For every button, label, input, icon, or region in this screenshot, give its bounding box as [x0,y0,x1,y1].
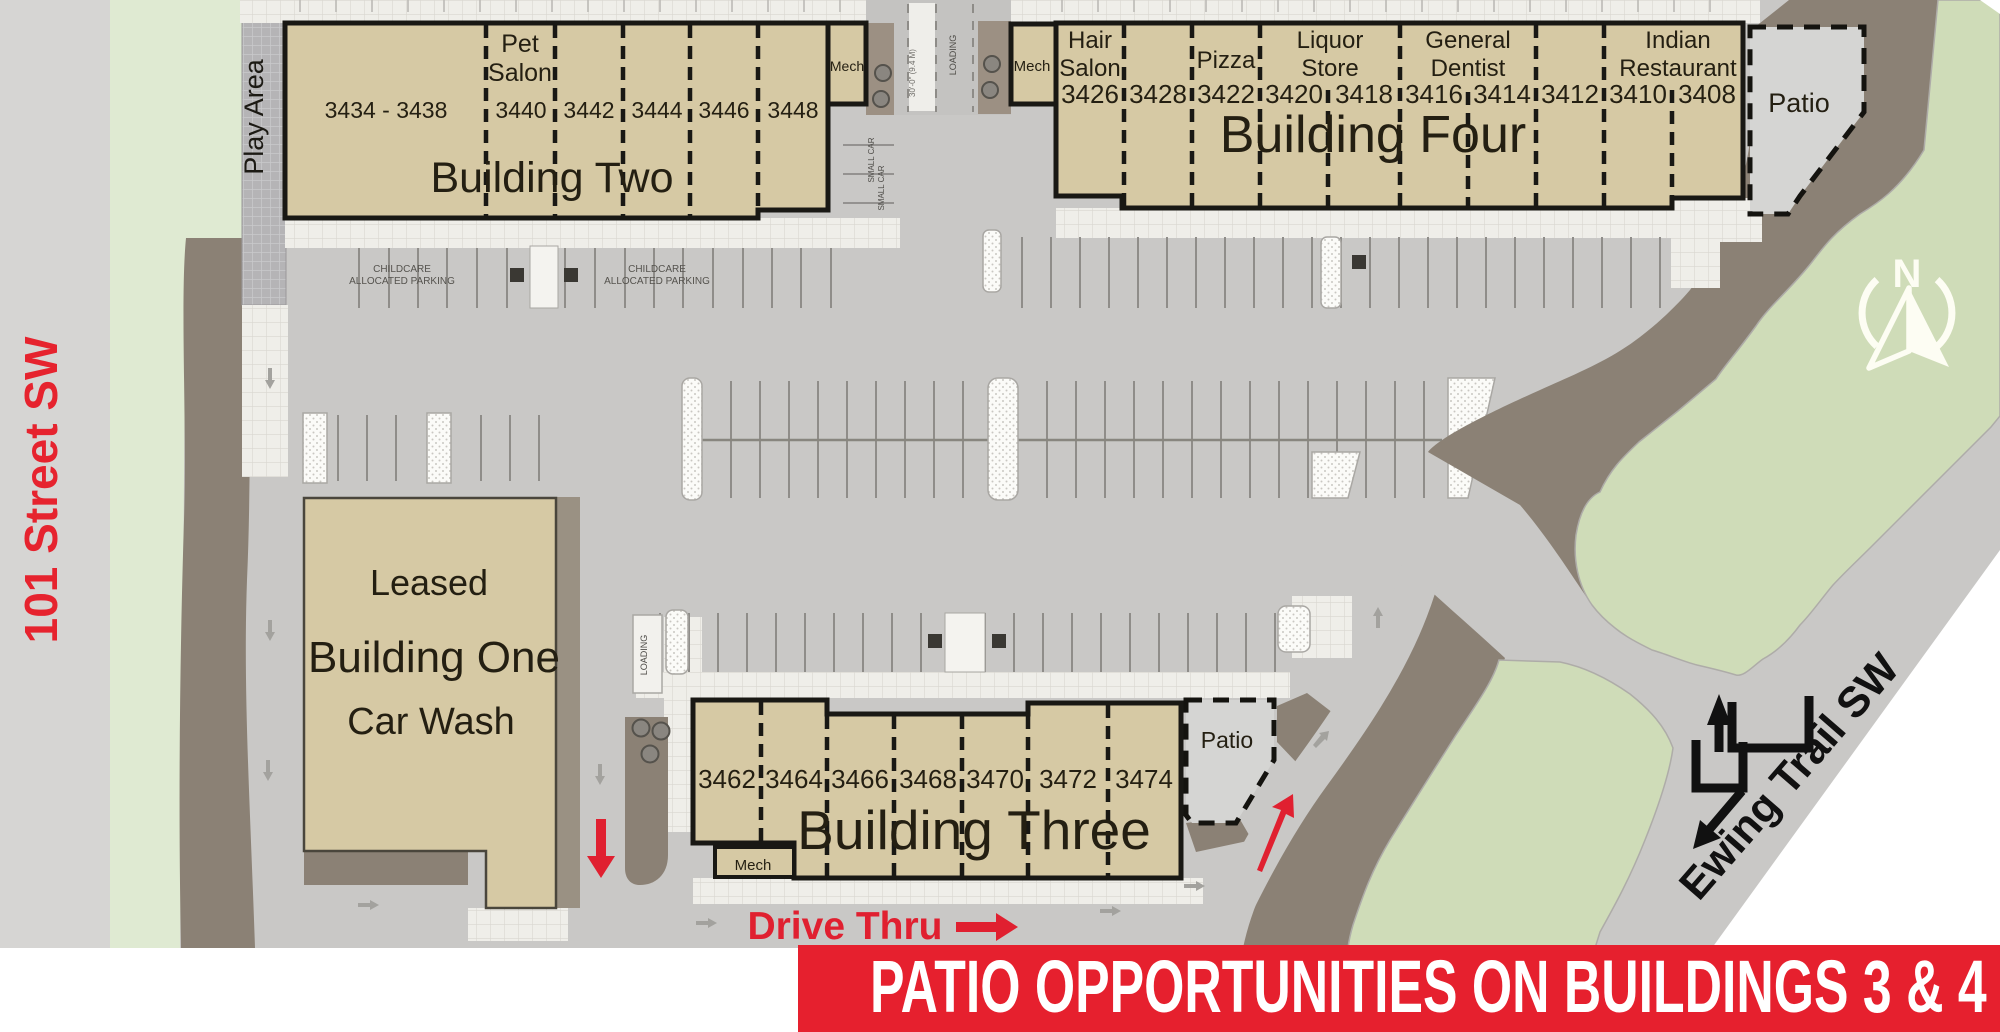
svg-text:Salon: Salon [1059,55,1120,82]
svg-text:Patio: Patio [1201,727,1253,753]
svg-text:3462: 3462 [698,764,756,794]
svg-text:Indian: Indian [1645,27,1710,54]
svg-text:3418: 3418 [1335,79,1393,109]
svg-text:3412: 3412 [1541,79,1599,109]
svg-text:Drive Thru: Drive Thru [747,905,942,948]
svg-text:SMALL CAR: SMALL CAR [867,137,876,182]
svg-text:3440: 3440 [495,97,546,123]
svg-text:3408: 3408 [1678,79,1736,109]
svg-text:Leased: Leased [370,562,488,603]
svg-text:Car Wash: Car Wash [347,701,515,743]
svg-text:Pizza: Pizza [1197,47,1256,74]
svg-text:Building Three: Building Three [797,799,1151,861]
svg-text:3422: 3422 [1197,79,1255,109]
svg-text:Building One: Building One [308,633,560,682]
svg-text:Play Area: Play Area [239,58,269,175]
svg-text:3464: 3464 [765,764,823,794]
svg-text:Dentist: Dentist [1431,55,1506,82]
svg-text:3414: 3414 [1473,79,1531,109]
svg-text:Hair: Hair [1068,27,1112,54]
svg-text:Pet: Pet [501,30,539,58]
svg-text:Restaurant: Restaurant [1619,55,1737,82]
svg-text:General: General [1425,27,1510,54]
svg-text:Liquor: Liquor [1297,27,1364,54]
svg-text:101 Street SW: 101 Street SW [15,336,67,643]
svg-text:3448: 3448 [767,97,818,123]
svg-text:Mech: Mech [1014,58,1051,75]
svg-text:3472: 3472 [1039,764,1097,794]
svg-text:3420: 3420 [1265,79,1323,109]
svg-text:CHILDCARE: CHILDCARE [373,264,431,275]
svg-text:3428: 3428 [1129,79,1187,109]
svg-text:ALLOCATED PARKING: ALLOCATED PARKING [604,276,710,287]
svg-text:LOADING: LOADING [639,635,649,676]
svg-text:Building Four: Building Four [1220,106,1526,164]
svg-text:Building Two: Building Two [430,154,673,202]
svg-text:Patio: Patio [1768,88,1830,118]
svg-text:3466: 3466 [831,764,889,794]
svg-text:Mech: Mech [830,58,864,74]
svg-text:3444: 3444 [631,97,682,123]
svg-text:30'-0" (9.4 M): 30'-0" (9.4 M) [908,49,917,97]
svg-text:3426: 3426 [1061,79,1119,109]
svg-text:3470: 3470 [966,764,1024,794]
svg-text:SMALL CAR: SMALL CAR [877,165,886,210]
svg-text:LOADING: LOADING [948,35,958,76]
svg-text:3434 - 3438: 3434 - 3438 [325,97,448,123]
svg-text:ALLOCATED PARKING: ALLOCATED PARKING [349,276,455,287]
svg-text:CHILDCARE: CHILDCARE [628,264,686,275]
svg-text:3416: 3416 [1405,79,1463,109]
svg-text:3446: 3446 [698,97,749,123]
svg-text:3474: 3474 [1115,764,1173,794]
svg-text:3442: 3442 [563,97,614,123]
svg-text:Store: Store [1301,55,1358,82]
svg-text:Salon: Salon [488,59,552,87]
svg-text:Mech: Mech [735,857,772,874]
svg-text:3410: 3410 [1609,79,1667,109]
svg-text:PATIO OPPORTUNITIES ON BUILDIN: PATIO OPPORTUNITIES ON BUILDINGS 3 & 4 [870,945,1987,1028]
svg-text:3468: 3468 [899,764,957,794]
